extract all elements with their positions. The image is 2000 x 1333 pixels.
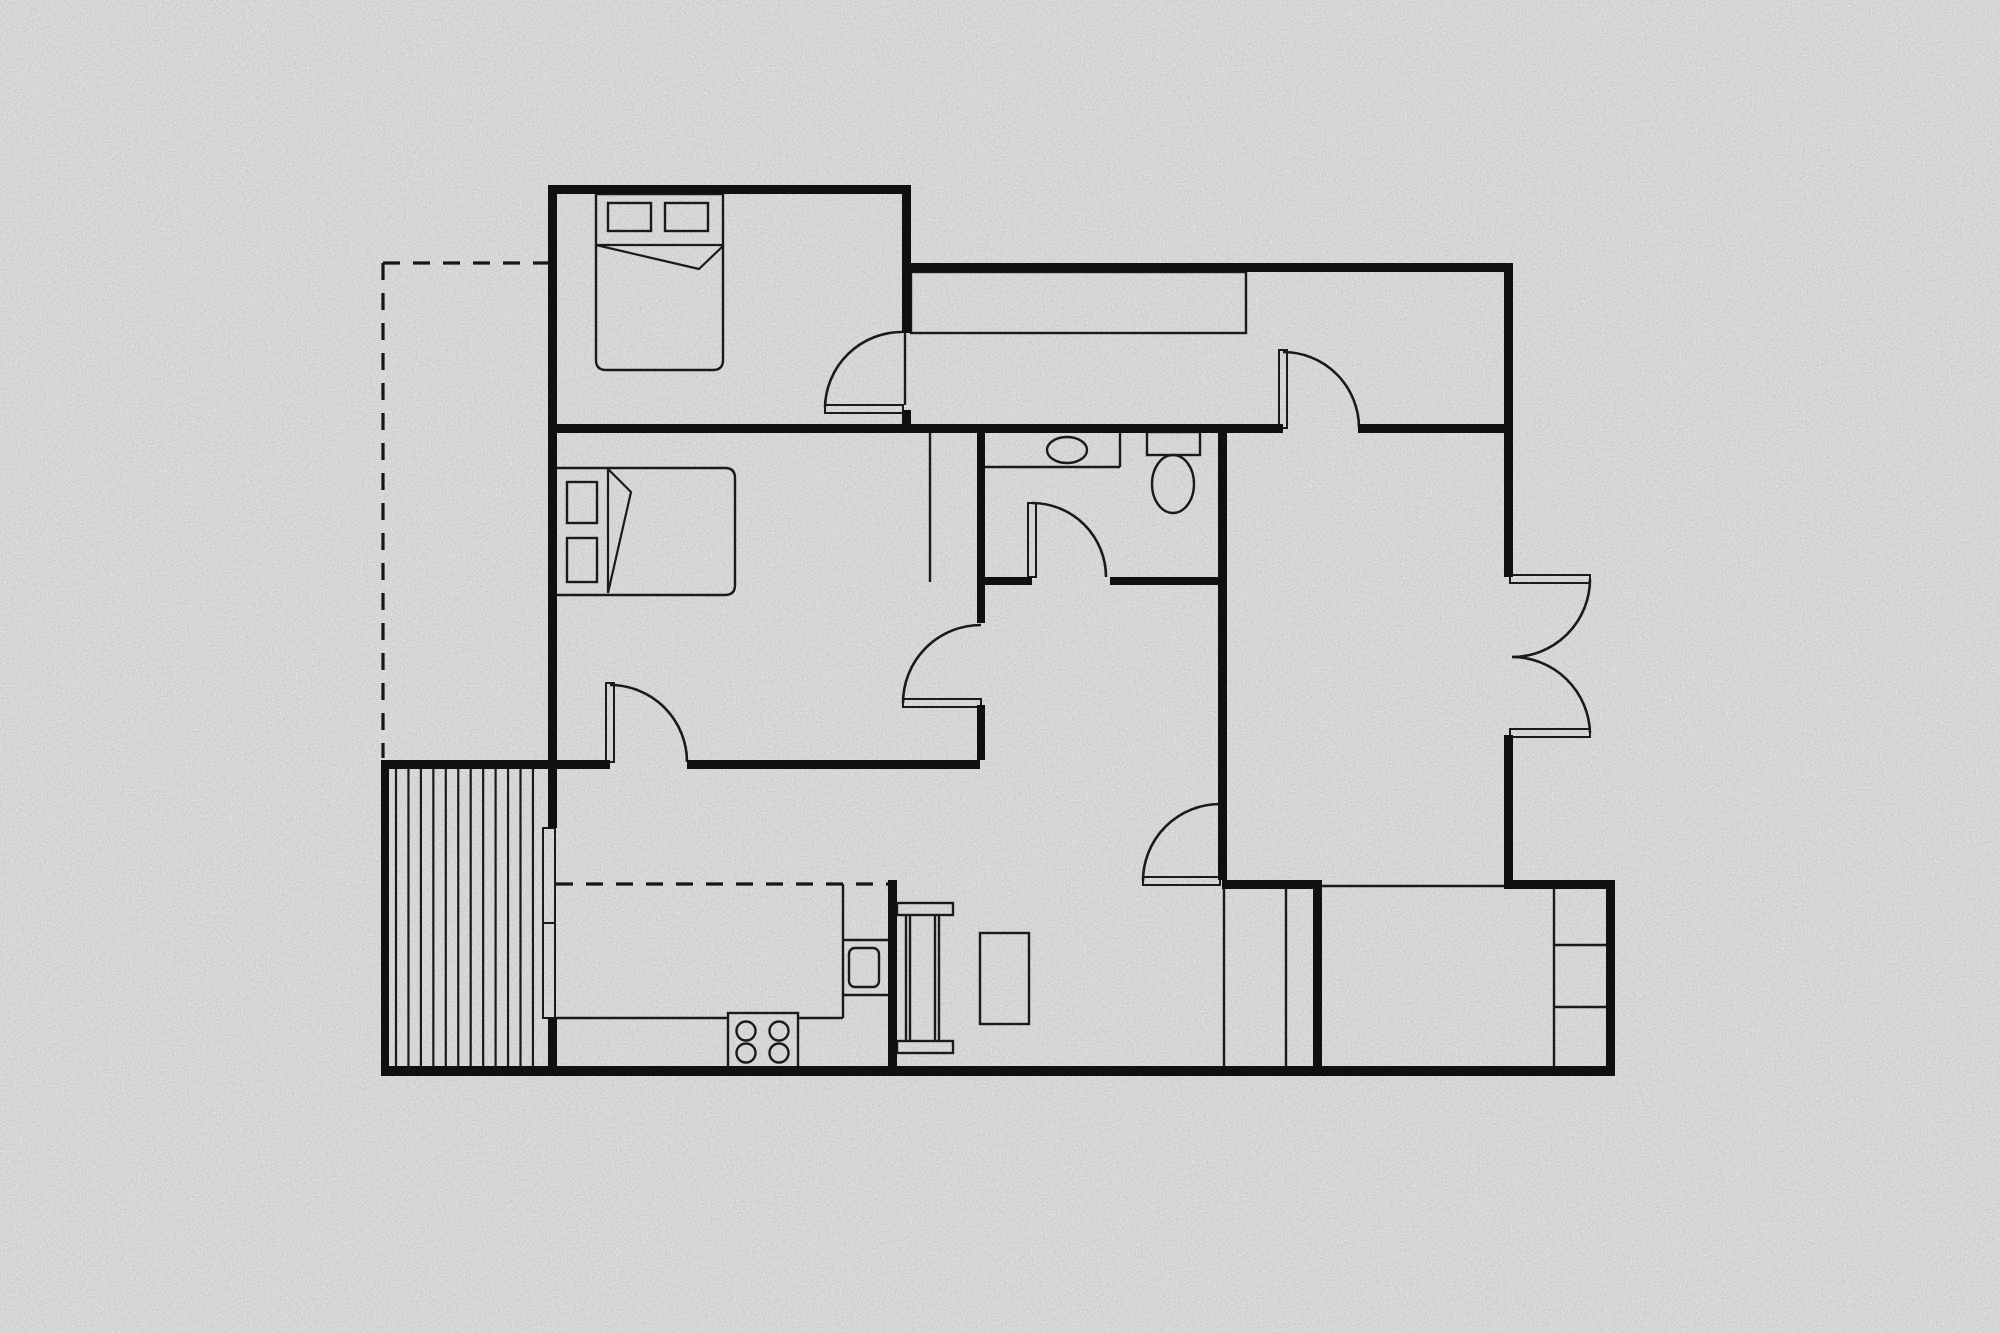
background-grain-light — [0, 0, 2000, 1333]
dining-closet-east-wall — [1313, 880, 1322, 1066]
floor-plan-image — [0, 0, 2000, 1333]
bottomright-north-wall — [1507, 880, 1615, 889]
main-cross-wall-east — [1358, 424, 1504, 433]
floor-plan-svg — [0, 0, 2000, 1333]
south-wall — [381, 1066, 1615, 1076]
bathroom-south-wall-east — [1110, 577, 1222, 585]
east-wall-upper — [1504, 272, 1513, 577]
bedroom1-east-wall-upper — [902, 185, 911, 333]
bedroom2-south-wall — [687, 760, 980, 769]
bedroom1-north-wall — [548, 185, 911, 194]
hallway-north-wall — [904, 263, 1513, 272]
dining-closet-north-wall — [1222, 880, 1322, 889]
background-layer — [0, 0, 2000, 1333]
bathroom-west-wall-stub — [977, 705, 985, 760]
east-wall-mid — [1504, 735, 1513, 889]
main-cross-wall-west — [548, 424, 1283, 433]
west-wall — [548, 185, 557, 828]
bathroom-south-wall-west — [985, 577, 1032, 585]
bathroom-west-wall — [977, 433, 985, 623]
livingroom-west-wall — [1218, 433, 1227, 880]
kitchen-east-wall — [888, 880, 897, 1066]
bottomright-east-wall — [1606, 880, 1615, 1076]
deck-west-wall — [381, 760, 389, 1076]
deck-north-wall — [381, 760, 610, 769]
